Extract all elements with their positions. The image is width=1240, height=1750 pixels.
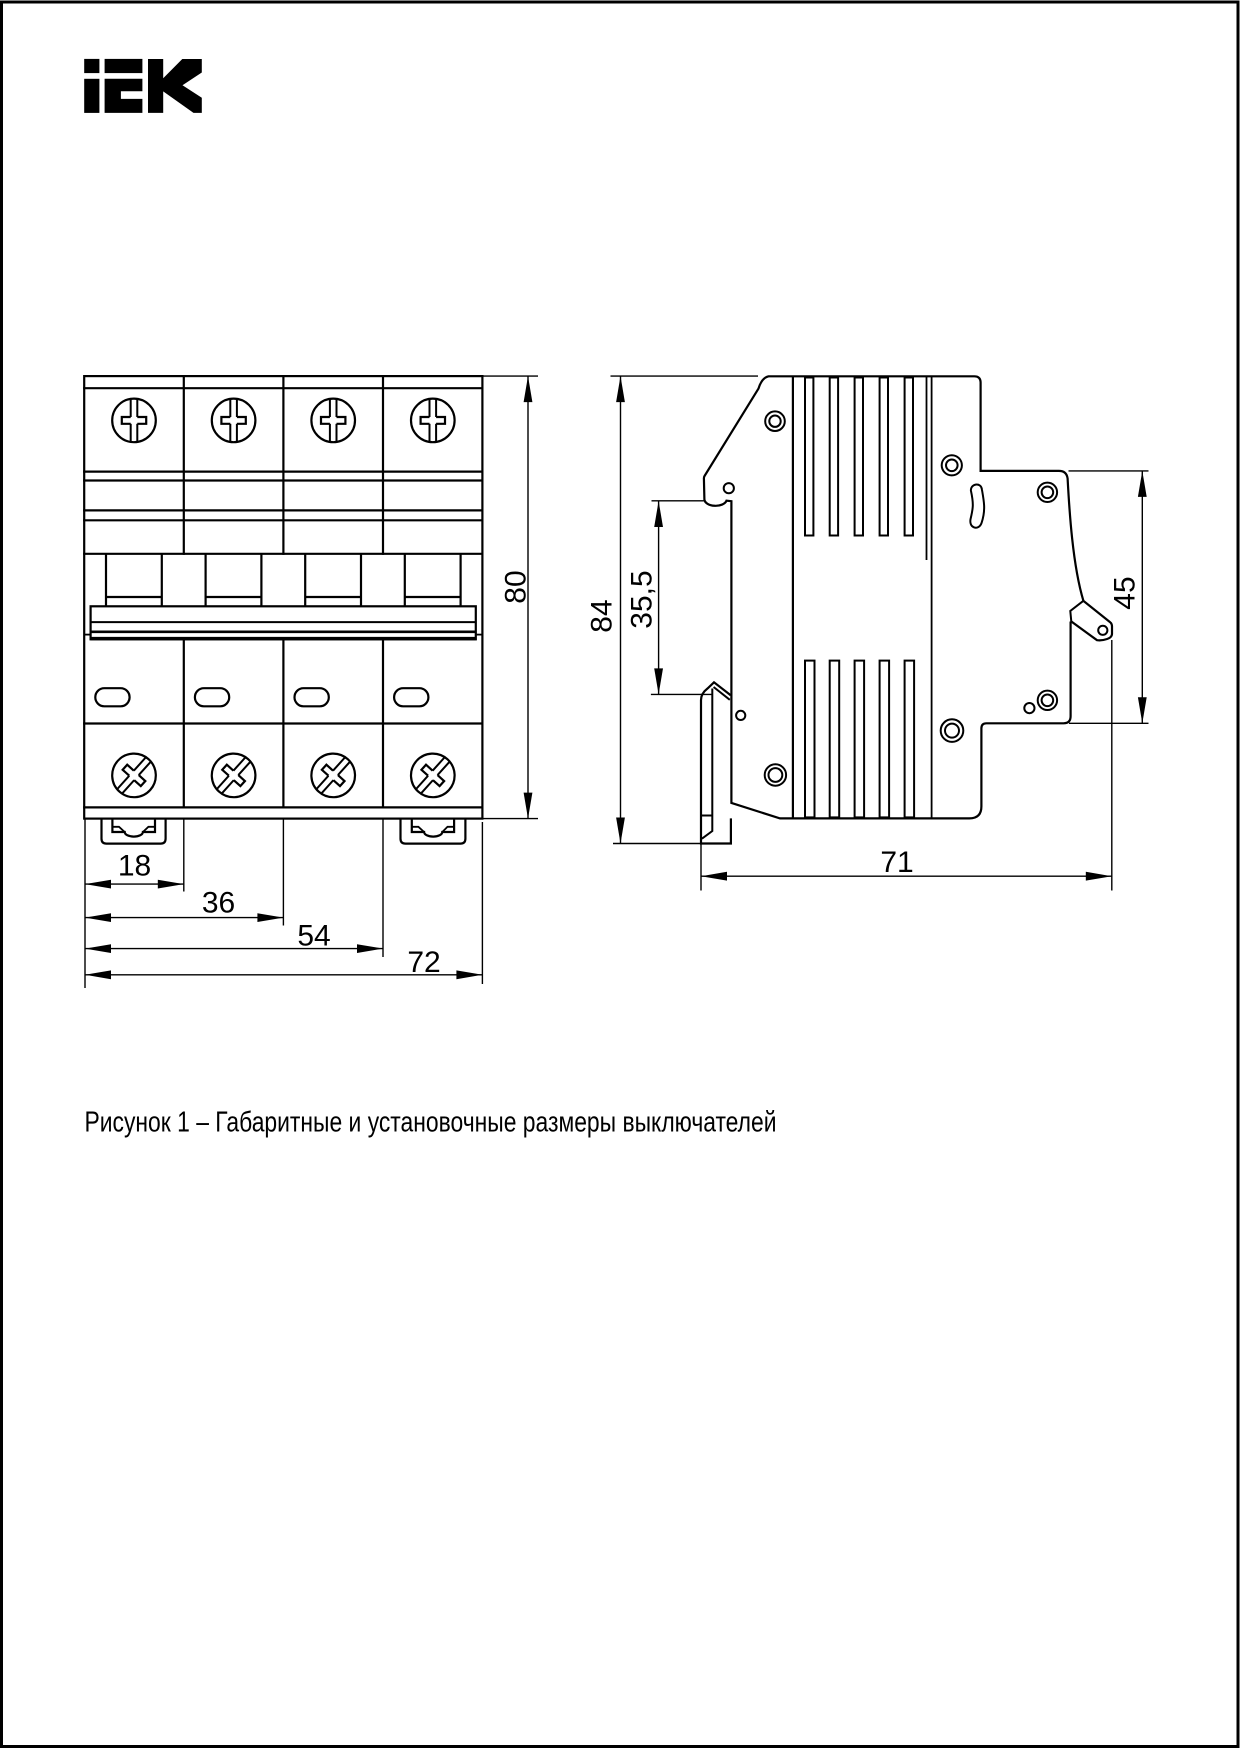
svg-text:Рисунок 1 – Габаритные и устан: Рисунок 1 – Габаритные и установочные ра… <box>85 1107 777 1139</box>
svg-text:45: 45 <box>1109 576 1142 609</box>
svg-text:35,5: 35,5 <box>626 570 659 628</box>
svg-text:18: 18 <box>118 850 151 883</box>
svg-text:71: 71 <box>880 846 913 879</box>
svg-text:54: 54 <box>297 920 330 953</box>
svg-text:72: 72 <box>407 946 440 979</box>
svg-text:36: 36 <box>202 887 235 920</box>
svg-text:84: 84 <box>586 599 619 632</box>
svg-text:80: 80 <box>500 570 533 603</box>
